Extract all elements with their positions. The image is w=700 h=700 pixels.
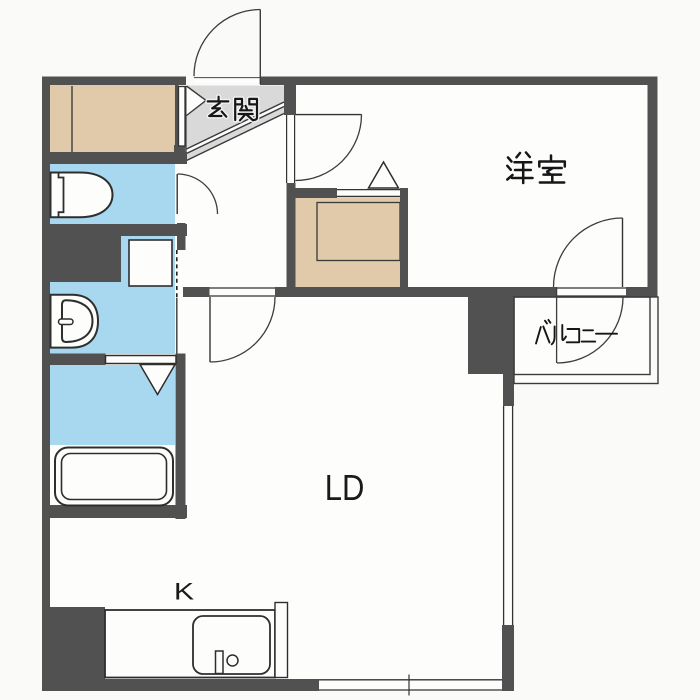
svg-text:LD: LD: [325, 468, 365, 509]
svg-text:K: K: [174, 578, 194, 605]
